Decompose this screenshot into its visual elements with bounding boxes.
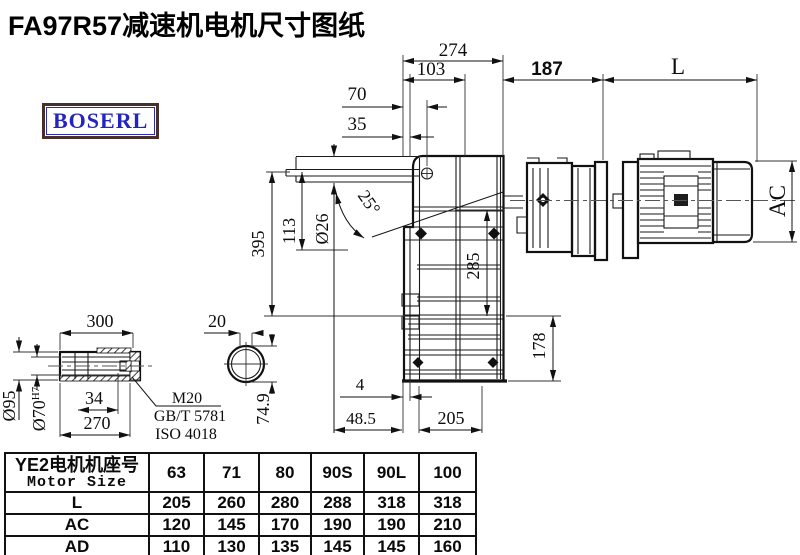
- cell: 318: [419, 492, 476, 514]
- cell: 318: [364, 492, 419, 514]
- dim-285: 285: [463, 253, 483, 280]
- dim-270: 270: [84, 413, 111, 433]
- dim-4: 4: [356, 375, 365, 394]
- dim-300: 300: [87, 311, 114, 331]
- size-80: 80: [259, 453, 311, 492]
- standard-gb: GB/T 5781: [154, 408, 226, 425]
- row-label-AD: AD: [5, 536, 149, 555]
- cell: 145: [204, 514, 259, 536]
- header-en: Motor Size: [6, 475, 148, 491]
- cell: 260: [204, 492, 259, 514]
- cell: 205: [149, 492, 204, 514]
- dimensions-main: 395 113 Ø26 25° 285 178 4 48.5 205 AC: [248, 144, 797, 433]
- cell: 145: [311, 536, 364, 555]
- cell: 145: [364, 536, 419, 555]
- dim-178: 178: [529, 333, 549, 360]
- lifting-lug: [658, 151, 690, 159]
- motor-size-table: YE2电机机座号 Motor Size 63 71 80 90S 90L 100…: [4, 452, 477, 555]
- dim-20: 20: [208, 311, 226, 331]
- table-row-L: L 205 260 280 288 318 318: [5, 492, 476, 514]
- row-label-AC: AC: [5, 514, 149, 536]
- cell: 135: [259, 536, 311, 555]
- dim-AC: AC: [765, 185, 790, 217]
- dim-205: 205: [438, 408, 465, 428]
- thread-callout: M20: [172, 390, 202, 407]
- dim-70: 70: [348, 84, 367, 105]
- cell: 190: [311, 514, 364, 536]
- motor-adapter: [504, 158, 638, 260]
- cell: 190: [364, 514, 419, 536]
- cell: 288: [311, 492, 364, 514]
- dim-dia70-H7: Ø70H7: [29, 386, 49, 431]
- dim-48-5: 48.5: [346, 409, 376, 428]
- cell: 280: [259, 492, 311, 514]
- dim-L: L: [671, 54, 685, 79]
- cell: 130: [204, 536, 259, 555]
- dim-74-9: 74.9: [253, 393, 273, 425]
- motor: [510, 151, 797, 243]
- dim-103: 103: [417, 59, 446, 80]
- standard-iso: ISO 4018: [155, 426, 217, 443]
- table-row-AD: AD 110 130 135 145 145 160: [5, 536, 476, 555]
- table-header-row: YE2电机机座号 Motor Size 63 71 80 90S 90L 100: [5, 453, 476, 492]
- size-90L: 90L: [364, 453, 419, 492]
- dim-187: 187: [531, 59, 563, 80]
- size-90S: 90S: [311, 453, 364, 492]
- page: FA97R57减速机电机尺寸图纸 BOSERL: [0, 0, 800, 555]
- dim-dia95: Ø95: [0, 391, 19, 422]
- hollow-shaft-detail: 300 Ø95 Ø70H7 34 270 M20 GB/T 5781 ISO 4…: [0, 311, 226, 443]
- dim-dia26: Ø26: [312, 214, 332, 245]
- table-row-AC: AC 120 145 170 190 190 210: [5, 514, 476, 536]
- cell: 160: [419, 536, 476, 555]
- table-header-motor-size: YE2电机机座号 Motor Size: [5, 453, 149, 492]
- size-100: 100: [419, 453, 476, 492]
- cell: 120: [149, 514, 204, 536]
- terminal-box: [674, 194, 688, 206]
- size-63: 63: [149, 453, 204, 492]
- torque-arm: [286, 157, 433, 183]
- dim-34: 34: [85, 388, 103, 408]
- cell: 110: [149, 536, 204, 555]
- dim-113: 113: [279, 218, 299, 244]
- size-71: 71: [204, 453, 259, 492]
- cell: 170: [259, 514, 311, 536]
- dimensions-top: 274 103 70 35 187 L: [342, 40, 757, 166]
- slant-face-line: [372, 192, 503, 237]
- dim-angle-25: 25°: [354, 186, 385, 218]
- dim-395: 395: [248, 231, 268, 258]
- header-cn: YE2电机机座号: [6, 455, 148, 475]
- dim-35: 35: [348, 114, 367, 135]
- dim-274: 274: [439, 40, 468, 61]
- fan-cowl: [713, 162, 752, 242]
- cell: 210: [419, 514, 476, 536]
- row-label-L: L: [5, 492, 149, 514]
